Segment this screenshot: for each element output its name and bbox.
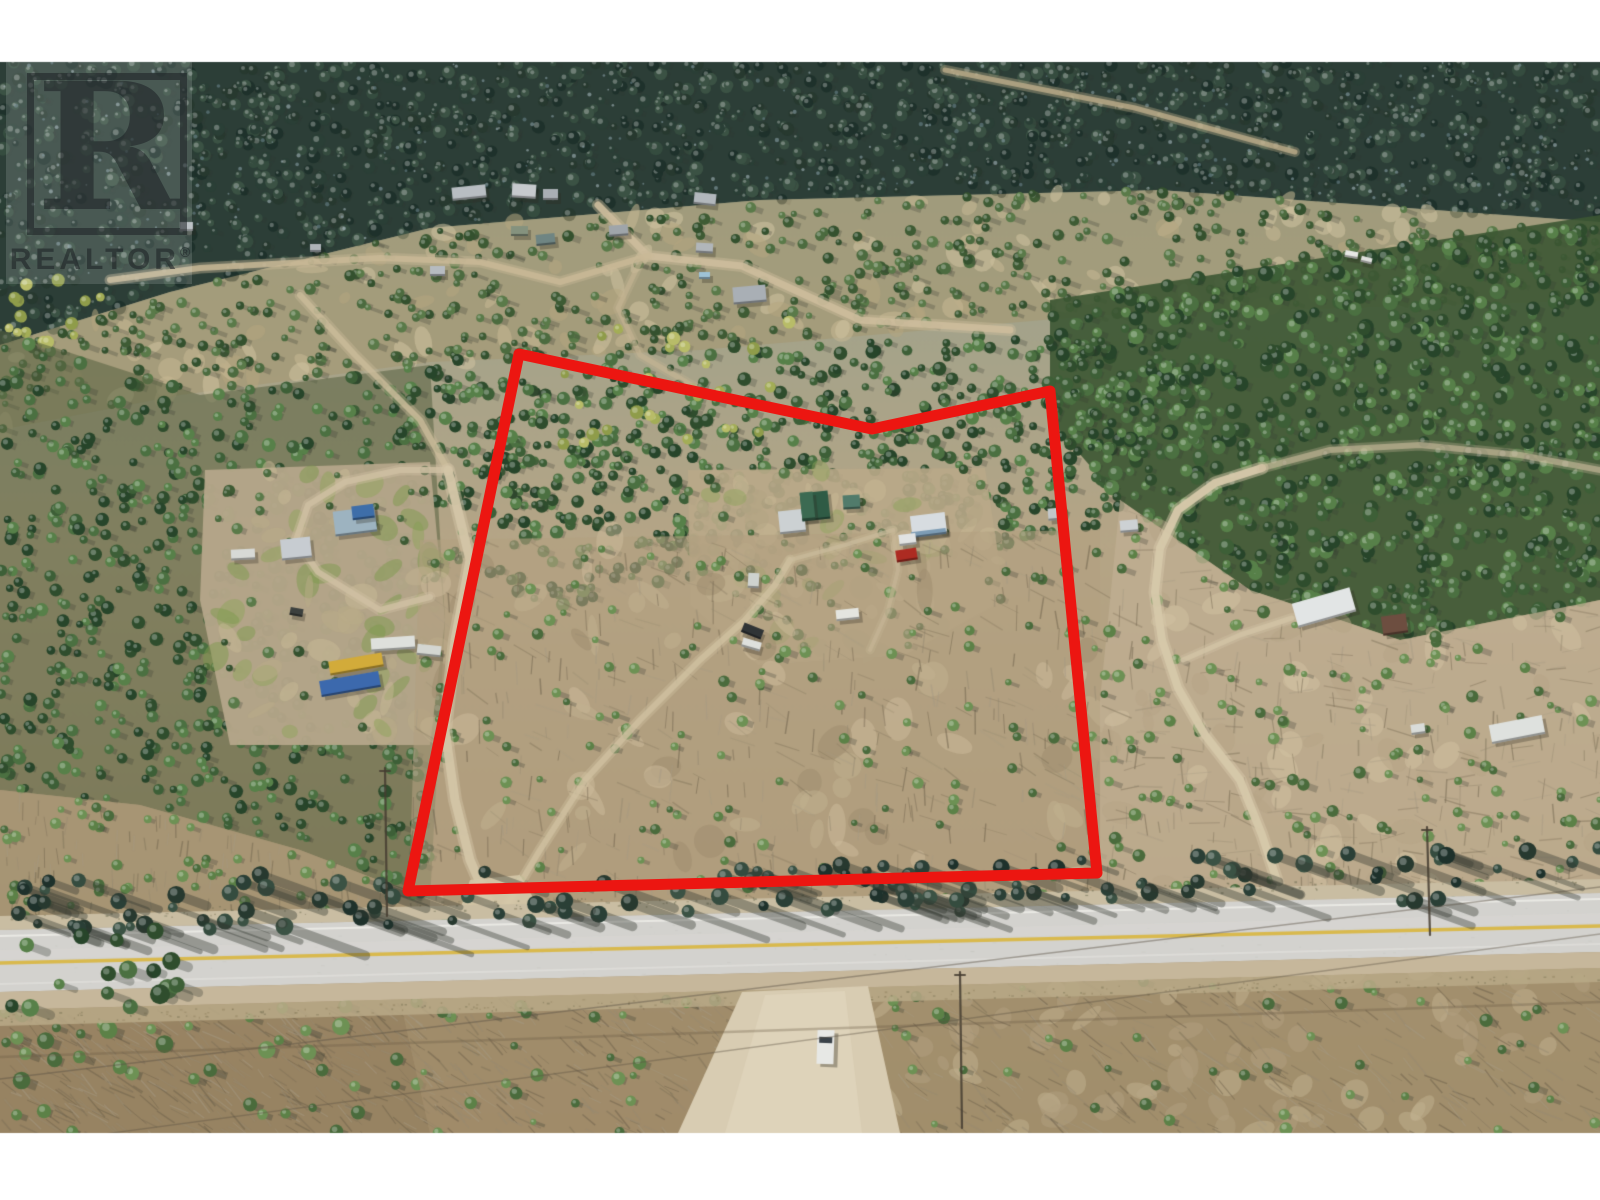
screenshot-root: R REALTOR®	[0, 0, 1600, 1200]
realtor-wordmark-text: REALTOR	[10, 243, 180, 276]
realtor-logo-letter: R	[34, 73, 180, 224]
realtor-logo-frame: R	[27, 73, 187, 235]
realtor-wordmark: REALTOR®	[0, 243, 200, 277]
aerial-photo	[0, 0, 1600, 1200]
realtor-watermark: R REALTOR®	[6, 62, 192, 284]
registered-trademark-symbol: ®	[180, 244, 190, 260]
